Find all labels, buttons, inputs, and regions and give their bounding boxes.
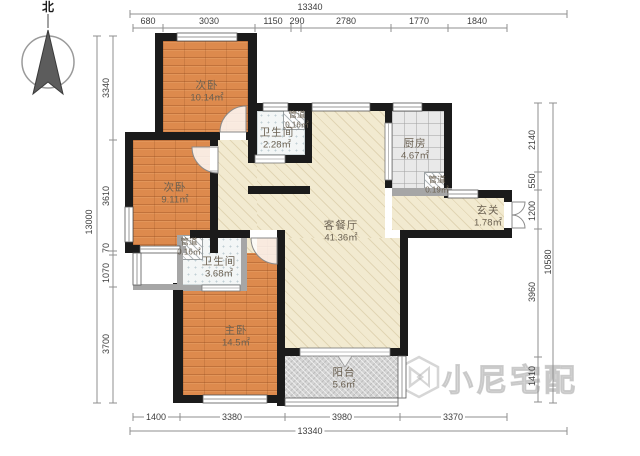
dim-bottom-3: 3370 [441,412,465,422]
room-label-bedroom-mid: 次卧 9.11㎡ [161,182,188,207]
room-area: 0.19㎡ [425,185,449,195]
watermark-logo-icon [396,354,442,400]
duct-label-top: 管道 0.16㎡ [285,110,309,131]
dim-right-1: 550 [527,173,537,188]
room-area: 10.14㎡ [190,93,223,105]
dim-left-2: 70 [101,243,111,253]
dim-left-1: 3610 [101,186,111,206]
room-name: 阳台 [333,367,356,380]
room-name: 管道 [177,237,201,248]
room-name: 玄关 [474,205,502,218]
dim-right-4: 1410 [527,366,537,386]
room-name: 客餐厅 [324,220,359,233]
room-area: 0.16㎡ [177,247,201,257]
room-label-entry: 玄关 1.78㎡ [474,205,502,230]
room-area: 3.68㎡ [202,269,237,281]
room-name: 厨房 [401,138,429,151]
north-arrow-icon [16,14,80,100]
room-area: 2.28㎡ [260,140,295,152]
dim-bottom-total: 13340 [295,426,324,436]
dim-top-4: 2780 [336,16,356,26]
dim-top-0: 680 [140,16,155,26]
room-area: 9.11㎡ [161,195,188,207]
dim-top-5: 1770 [409,16,429,26]
dim-bottom-0: 1400 [144,412,168,422]
room-label-master-bedroom: 主卧 14.5㎡ [222,325,250,350]
dim-bottom-1: 3380 [220,412,244,422]
room-area: 0.16㎡ [285,120,309,130]
dim-top-2: 1150 [263,16,282,26]
dim-right-3: 3960 [527,282,537,302]
room-name: 次卧 [161,182,188,195]
room-floor-living-c [285,238,400,348]
dim-right-total: 10580 [543,249,553,274]
room-area: 1.78㎡ [474,218,502,230]
room-area: 5.6㎡ [333,380,356,392]
watermark-text: 小尼宅配 [442,355,578,400]
room-name: 管道 [285,110,309,121]
north-label: 北 [16,0,80,14]
dim-left-3: 1070 [101,263,111,283]
room-label-living: 客餐厅 41.36㎡ [324,220,359,245]
room-area: 4.67㎡ [401,151,429,163]
dim-top-3: 290 [289,16,304,26]
duct-label-mid: 管道 0.16㎡ [177,237,201,258]
room-label-balcony: 阳台 5.6㎡ [333,367,356,392]
dim-right-2: 1200 [527,201,537,221]
north-compass: 北 [16,0,80,100]
room-area: 14.5㎡ [222,338,250,350]
watermark: 小尼宅配 [396,354,578,400]
dim-bottom-2: 3980 [330,412,354,422]
room-name: 管道 [425,175,449,186]
room-name: 次卧 [190,80,223,93]
room-label-bedroom-top: 次卧 10.14㎡ [190,80,223,105]
floorplan-canvas: 次卧 10.14㎡ 次卧 9.11㎡ 主卧 14.5㎡ 卫生间 2.28㎡ 卫生… [0,0,640,456]
room-label-kitchen: 厨房 4.67㎡ [401,138,429,163]
room-name: 卫生间 [202,256,237,269]
dim-top-6: 1840 [467,16,487,26]
dim-right-0: 2140 [527,130,537,150]
room-area: 41.36㎡ [324,233,359,245]
room-label-bath-mid: 卫生间 3.68㎡ [202,256,237,281]
dim-left-4: 3700 [101,334,111,354]
dim-left-total: 13000 [84,209,94,234]
room-name: 主卧 [222,325,250,338]
dim-top-total: 13340 [295,2,324,12]
dim-top-1: 3030 [199,16,219,26]
dim-left-0: 3340 [101,78,111,98]
duct-label-kitchen: 管道 0.19㎡ [425,175,449,196]
